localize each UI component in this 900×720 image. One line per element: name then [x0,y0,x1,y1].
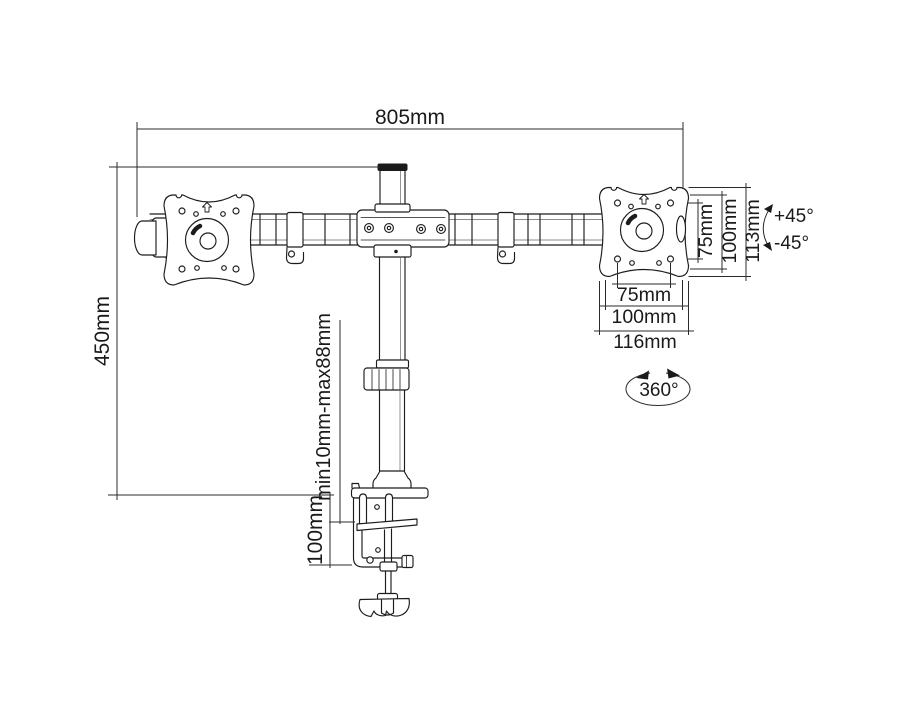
dim-vesa-v-inner-label: 75mm [695,204,717,258]
desk-clamp [352,484,429,617]
dim-plate-width-label: 116mm [613,331,677,353]
clamp-guide-pin [386,494,393,524]
pole-top [375,164,410,213]
dim-pole-height-label: 450mm [91,296,114,366]
right-vesa-plate [600,188,689,277]
tilt-up-label: +45° [774,206,814,227]
left-vesa-plate [164,195,254,285]
pole-base-cone [373,471,411,489]
clamp-guide-pin [360,494,367,524]
technical-drawing-monitor-arm: 805mm 450mm min10mm-max88mm 100mm 75mm 1… [0,0,900,720]
dim-vesa-h-outer-label: 100mm [611,306,676,328]
clamp-screw [378,529,398,600]
height-adjustment-ring [364,360,409,390]
dim-clamp-depth-label: 100mm [304,495,327,565]
dim-arm-span-label: 805mm [375,106,445,129]
drawing-canvas: 805mm 450mm min10mm-max88mm 100mm 75mm 1… [0,0,900,720]
cable-clip-right [498,213,515,264]
dim-clamp-range-label: min10mm-max88mm [313,313,335,501]
dim-vesa-h-inner-label: 75mm [617,284,671,306]
arm-end-cap [135,218,169,257]
center-pole [364,245,411,489]
right-plate-connector [677,216,686,242]
clamp-knob [359,599,409,617]
tilt-arc [763,204,773,251]
center-joint-block [357,210,449,247]
dim-vesa-v-outer-label: 100mm [719,198,741,263]
swivel-label: 360° [639,380,678,401]
dim-plate-height-label: 113mm [742,199,764,263]
tilt-down-label: -45° [774,233,809,254]
cable-clip-left [287,213,304,264]
